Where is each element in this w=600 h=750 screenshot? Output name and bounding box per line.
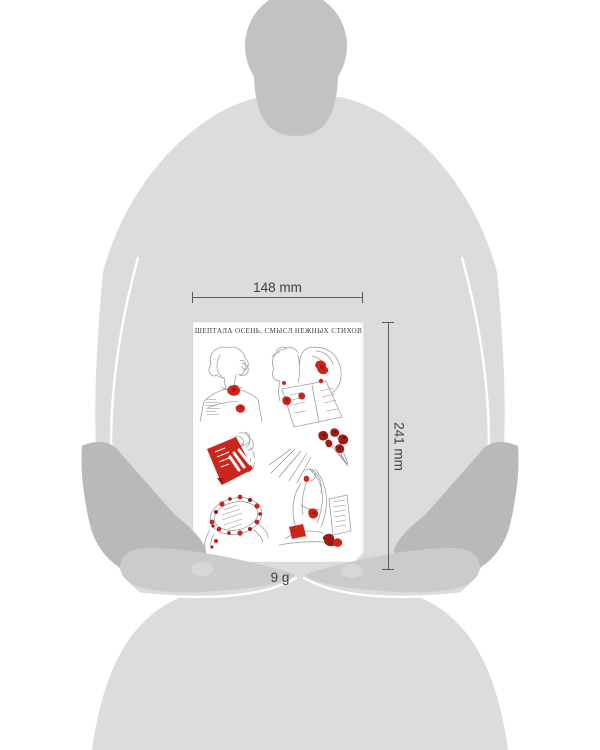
height-dim-tick-top — [382, 322, 394, 323]
width-label: 148 mm — [192, 280, 363, 295]
width-dim-line — [192, 297, 363, 298]
right-thumb-knuckle — [341, 564, 363, 578]
height-label: 241 mm — [392, 417, 407, 477]
person-silhouette-hands — [0, 0, 600, 750]
height-dim-tick-bottom — [382, 569, 394, 570]
product-size-mockup: ШЕПТАЛА ОСЕНЬ, СМЫСЛ НЕЖНЫХ СТИХОВ — [0, 0, 600, 750]
left-thumb-knuckle — [191, 562, 213, 576]
weight-label: 9 g — [230, 570, 330, 585]
height-dim-line — [388, 322, 389, 570]
right-hand — [305, 548, 480, 592]
